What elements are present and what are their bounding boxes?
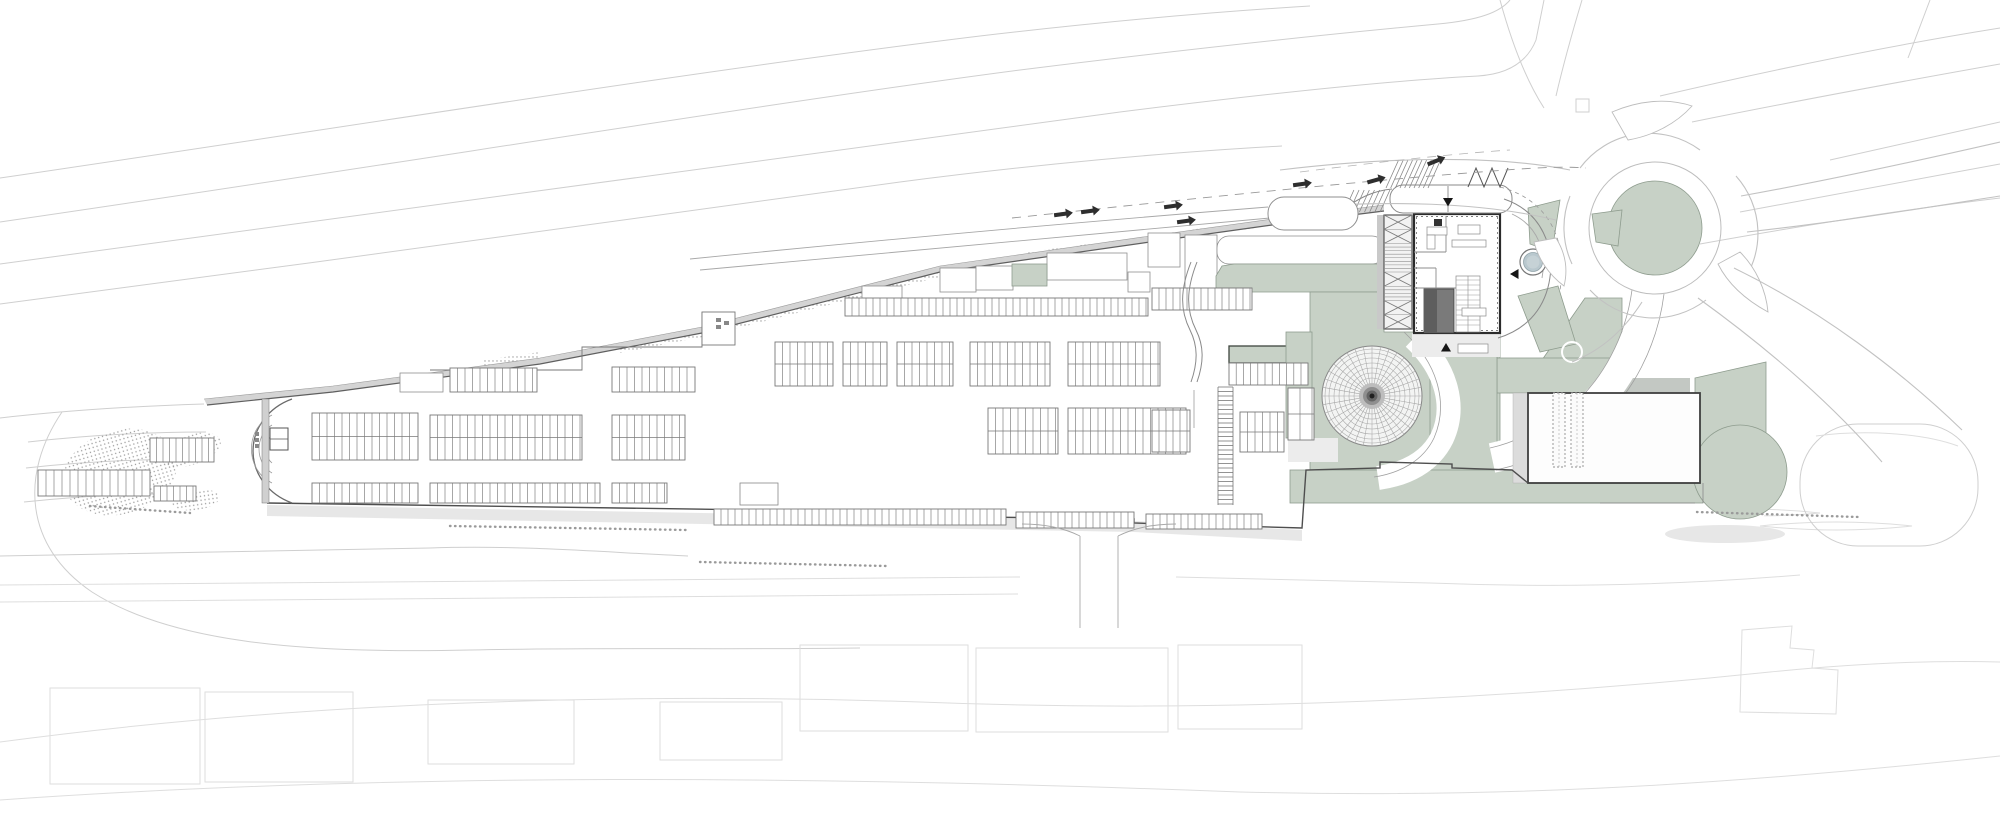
parking-block — [1146, 514, 1262, 529]
parking-block — [897, 342, 953, 386]
dark-fixture — [1434, 219, 1442, 226]
parking-block — [988, 408, 1058, 454]
plaza-gray-strip — [1513, 393, 1528, 483]
parking-block — [430, 483, 600, 503]
retaining-edge — [1622, 378, 1690, 393]
traffic-island-bullet — [1268, 197, 1358, 230]
parking-block — [154, 486, 196, 501]
parking-block — [612, 415, 685, 460]
dome-side-plaza — [1288, 438, 1338, 462]
parking-block — [845, 298, 1148, 316]
parking-block — [843, 342, 887, 386]
parking-block — [970, 342, 1050, 386]
parking-block — [312, 483, 418, 503]
parking-block — [150, 438, 214, 462]
parking-block — [1229, 363, 1308, 385]
parking-block — [1016, 512, 1134, 528]
parking-block — [1152, 410, 1190, 452]
parking-block — [430, 415, 582, 460]
dome-canopy — [1322, 346, 1422, 446]
stair-zigzag — [1468, 168, 1508, 187]
parking-block — [612, 483, 667, 503]
stair-run — [1456, 276, 1480, 332]
parking-block — [1152, 288, 1252, 310]
parking-block — [612, 367, 695, 392]
site-plan-drawing — [0, 0, 2000, 818]
parking-block — [38, 470, 150, 496]
trellis-screen — [1384, 215, 1412, 329]
parking-block — [775, 342, 833, 386]
west-wall — [262, 399, 269, 503]
site-plan-canvas — [0, 0, 2000, 818]
parking-block — [1240, 412, 1284, 452]
t-crossing — [1022, 524, 1176, 628]
parking-block — [714, 509, 1006, 525]
parking-block — [312, 413, 418, 460]
parking-block — [1288, 388, 1314, 440]
parking-block — [450, 368, 537, 392]
parking-block — [1068, 342, 1160, 386]
